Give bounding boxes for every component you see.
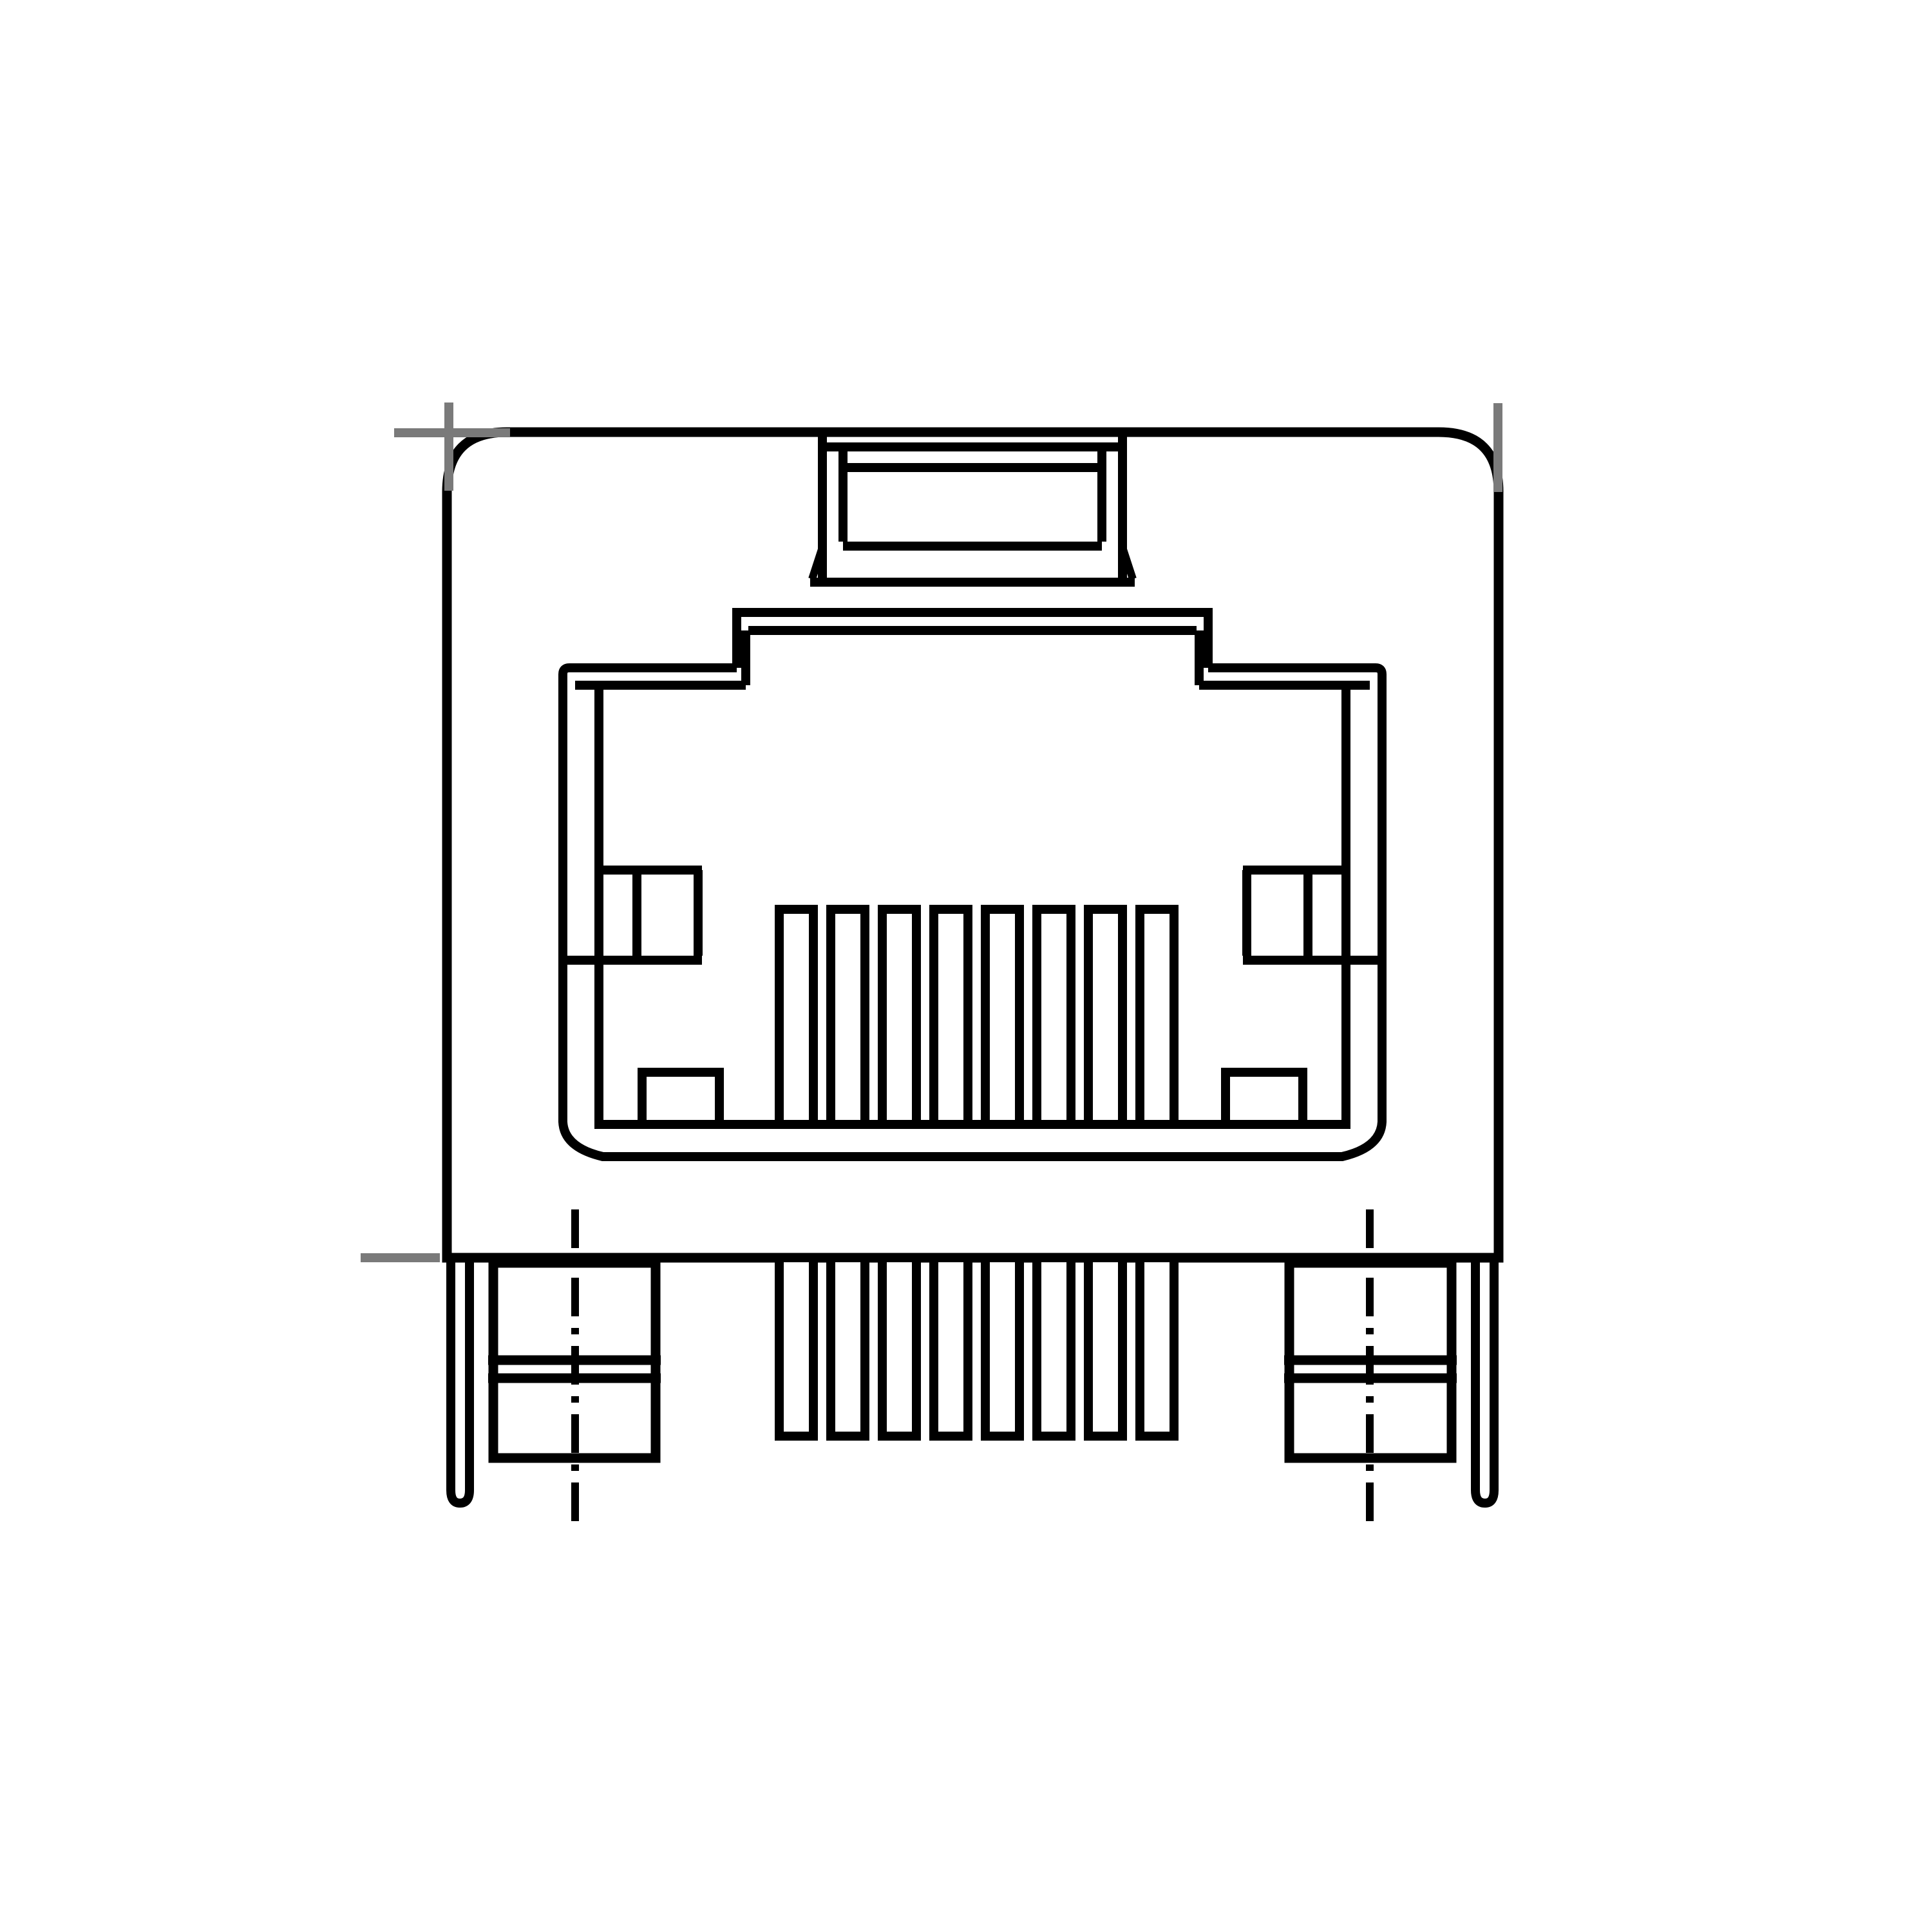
- contact-4: [934, 909, 968, 1124]
- solder-pin-8: [1140, 1258, 1174, 1436]
- solder-pin-1: [779, 1258, 813, 1436]
- drawing-canvas: [0, 0, 1932, 1932]
- solder-pin-4: [934, 1258, 968, 1436]
- contact-5: [985, 909, 1019, 1124]
- contact-8: [1140, 909, 1174, 1124]
- right-leg: [1475, 1261, 1494, 1503]
- solder-pin-6: [1037, 1258, 1071, 1436]
- solder-pin-7: [1088, 1258, 1122, 1436]
- contact-3: [882, 909, 916, 1124]
- connector-body-outline: [447, 432, 1499, 1258]
- contact-comb: [779, 909, 1174, 1124]
- solder-pin-5: [985, 1258, 1019, 1436]
- solder-pin-tails: [779, 1258, 1174, 1436]
- solder-pin-2: [831, 1258, 865, 1436]
- rj45-jack-front-view-drawing: [0, 0, 1932, 1932]
- right-floor-bump: [1226, 1072, 1303, 1126]
- contact-1: [779, 909, 813, 1124]
- opening-shoulders: [569, 668, 1376, 685]
- contact-2: [831, 909, 865, 1124]
- opening-roof: [732, 612, 1213, 685]
- left-leg: [451, 1261, 469, 1503]
- solder-pin-3: [882, 1258, 916, 1436]
- latch-slot: [810, 437, 1135, 582]
- contact-6: [1037, 909, 1071, 1124]
- datum-centerline-marks: [361, 402, 1498, 1258]
- contact-7: [1088, 909, 1122, 1124]
- left-floor-bump: [642, 1072, 719, 1126]
